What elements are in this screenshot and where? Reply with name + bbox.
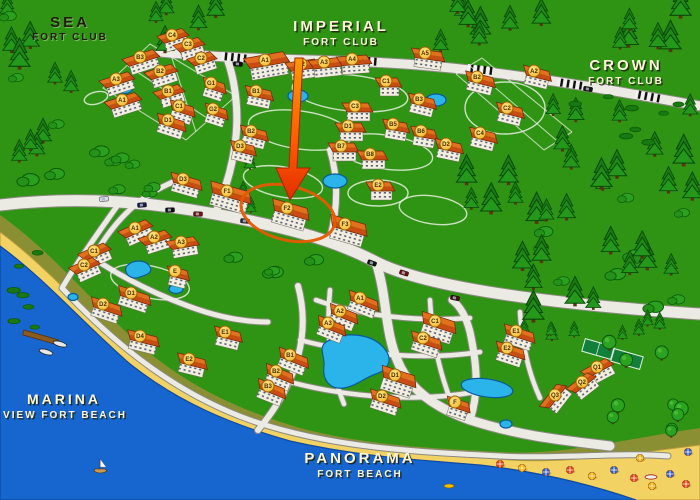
- svg-text:D3: D3: [179, 177, 187, 183]
- svg-text:C2: C2: [80, 263, 88, 269]
- svg-text:B8: B8: [366, 152, 374, 158]
- svg-text:A3: A3: [112, 77, 120, 83]
- building-badge: B2: [154, 65, 166, 77]
- building-badge: C2: [195, 52, 207, 64]
- building-badge: C2: [417, 332, 429, 344]
- svg-text:A2: A2: [530, 69, 538, 75]
- svg-text:B5: B5: [389, 122, 397, 128]
- svg-text:D1: D1: [127, 291, 135, 297]
- building-badge: B3: [134, 51, 146, 63]
- car: [165, 208, 174, 213]
- building-badge: D1: [162, 114, 174, 126]
- building-badge: F: [449, 396, 461, 408]
- svg-text:D1: D1: [344, 124, 352, 130]
- building-badge: G1: [205, 77, 217, 89]
- svg-text:C4: C4: [476, 131, 484, 137]
- svg-text:CROWN: CROWN: [589, 57, 662, 74]
- building-badge: D2: [376, 390, 388, 402]
- svg-text:B2: B2: [473, 75, 481, 81]
- svg-text:B2: B2: [156, 69, 164, 75]
- building-badge: E2: [501, 342, 513, 354]
- svg-text:FORT CLUB: FORT CLUB: [303, 37, 379, 48]
- building-badge: E2: [183, 353, 195, 365]
- svg-text:C1: C1: [175, 104, 183, 110]
- building-badge: A1: [129, 222, 141, 234]
- building-badge: B8: [364, 148, 376, 160]
- building-badge: A1: [354, 292, 366, 304]
- building-badge: D1: [125, 287, 137, 299]
- building-badge: A1: [116, 94, 128, 106]
- building-badge: C2: [501, 102, 513, 114]
- svg-text:A2: A2: [150, 235, 158, 241]
- building-badge: B3: [413, 93, 425, 105]
- building-badge: Q3: [549, 389, 561, 401]
- building-badge: A2: [148, 231, 160, 243]
- svg-text:B7: B7: [337, 144, 345, 150]
- svg-text:D1: D1: [391, 373, 399, 379]
- motorboat: [645, 475, 657, 479]
- svg-text:A1: A1: [356, 296, 364, 302]
- svg-text:E1: E1: [512, 329, 520, 335]
- svg-text:B2: B2: [272, 369, 280, 375]
- svg-text:C2: C2: [197, 56, 205, 62]
- svg-text:A3: A3: [320, 60, 328, 66]
- svg-text:FORT CLUB: FORT CLUB: [588, 76, 664, 87]
- svg-text:F1: F1: [223, 189, 231, 195]
- building-badge: A2: [334, 305, 346, 317]
- svg-text:C2: C2: [419, 336, 427, 342]
- svg-text:C1: C1: [90, 249, 98, 255]
- building-badge: C3: [349, 100, 361, 112]
- building-badge: E: [169, 265, 181, 277]
- svg-text:PANORAMA: PANORAMA: [304, 450, 415, 467]
- svg-text:FORT BEACH: FORT BEACH: [317, 469, 403, 480]
- svg-text:B1: B1: [286, 353, 294, 359]
- building-badge: A5: [419, 47, 431, 59]
- building-badge: E1: [510, 325, 522, 337]
- svg-text:SEA: SEA: [50, 14, 90, 31]
- svg-text:D2: D2: [442, 142, 450, 148]
- building-badge: C4: [474, 127, 486, 139]
- building-badge: F1: [221, 185, 233, 197]
- svg-text:G1: G1: [207, 81, 216, 87]
- building-badge: C3: [182, 38, 194, 50]
- building-badge: D2: [97, 298, 109, 310]
- svg-text:A2: A2: [336, 309, 344, 315]
- svg-text:E2: E2: [185, 357, 193, 363]
- building-badge: D3: [177, 173, 189, 185]
- label-panorama-fort-beach: PANORAMA PANORAMA FORT BEACH FORT BEACH: [304, 450, 417, 482]
- svg-text:F2: F2: [283, 206, 291, 212]
- svg-text:Q2: Q2: [578, 380, 587, 386]
- building-badge: D1: [342, 120, 354, 132]
- svg-text:A1: A1: [261, 58, 269, 64]
- svg-text:B3: B3: [264, 384, 272, 390]
- svg-text:C1: C1: [431, 319, 439, 325]
- svg-text:VIEW FORT BEACH: VIEW FORT BEACH: [3, 410, 127, 421]
- svg-text:C3: C3: [184, 42, 192, 48]
- building-badge: A3: [175, 236, 187, 248]
- building-badge: D4: [134, 330, 146, 342]
- building-badge: B5: [387, 118, 399, 130]
- map-canvas: swimming-poolswimming-poolswimming-pools…: [0, 0, 700, 500]
- svg-text:Q1: Q1: [593, 365, 602, 371]
- svg-text:C3: C3: [351, 104, 359, 110]
- svg-text:B3: B3: [136, 55, 144, 61]
- svg-text:D2: D2: [378, 394, 386, 400]
- building-badge: A3: [322, 317, 334, 329]
- svg-text:F: F: [453, 400, 457, 406]
- building-badge: A3: [318, 56, 330, 68]
- building-badge: E2: [372, 179, 384, 191]
- building-badge: C4: [166, 29, 178, 41]
- building-badge: C1: [380, 75, 392, 87]
- building-badge: B1: [250, 85, 262, 97]
- building-badge: A2: [528, 65, 540, 77]
- car: [233, 61, 242, 66]
- building-badge: C1: [429, 315, 441, 327]
- svg-text:IMPERIAL: IMPERIAL: [293, 18, 389, 35]
- building-badge: F2: [281, 202, 293, 214]
- building-badge: A3: [110, 73, 122, 85]
- svg-text:G2: G2: [209, 107, 218, 113]
- svg-text:B1: B1: [252, 89, 260, 95]
- svg-text:A4: A4: [348, 57, 356, 63]
- building-badge: F3: [339, 218, 351, 230]
- svg-text:D3: D3: [236, 144, 244, 150]
- car: [137, 202, 146, 207]
- svg-text:C1: C1: [382, 79, 390, 85]
- label-imperial-fort-club: IMPERIAL IMPERIAL FORT CLUB FORT CLUB: [293, 18, 390, 50]
- svg-text:D1: D1: [164, 118, 172, 124]
- svg-text:D2: D2: [99, 302, 107, 308]
- building-badge: B2: [245, 125, 257, 137]
- building-badge: C2: [78, 259, 90, 271]
- svg-text:A1: A1: [131, 226, 139, 232]
- building-badge: B2: [471, 71, 483, 83]
- building-badge: G2: [207, 103, 219, 115]
- svg-text:D4: D4: [136, 334, 144, 340]
- building-badge: D3: [234, 140, 246, 152]
- car: [193, 212, 202, 217]
- svg-text:C4: C4: [168, 33, 176, 39]
- svg-text:A3: A3: [324, 321, 332, 327]
- building-badge: B7: [335, 140, 347, 152]
- building-badge: B2: [270, 365, 282, 377]
- building-badge: Q2: [576, 376, 588, 388]
- building-badge: A1: [259, 54, 271, 66]
- building-badge: B3: [262, 380, 274, 392]
- svg-text:B3: B3: [415, 97, 423, 103]
- svg-text:F3: F3: [341, 222, 349, 228]
- building-badge: A4: [346, 53, 358, 65]
- building-badge: Q1: [591, 361, 603, 373]
- building-badge: D2: [440, 138, 452, 150]
- svg-text:E2: E2: [374, 183, 382, 189]
- svg-text:C2: C2: [503, 106, 511, 112]
- svg-text:MARINA: MARINA: [27, 391, 101, 407]
- svg-text:E1: E1: [221, 330, 229, 336]
- svg-text:FORT CLUB: FORT CLUB: [32, 32, 108, 43]
- building-badge: B1: [162, 85, 174, 97]
- svg-text:E: E: [173, 269, 177, 275]
- svg-text:B6: B6: [417, 129, 425, 135]
- svg-text:B1: B1: [164, 89, 172, 95]
- svg-text:B2: B2: [247, 129, 255, 135]
- building-badge: D1: [389, 369, 401, 381]
- svg-text:A5: A5: [421, 51, 429, 57]
- building-badge: C1: [173, 100, 185, 112]
- svg-text:Q3: Q3: [551, 393, 560, 399]
- building-badge: E1: [219, 326, 231, 338]
- svg-text:E2: E2: [503, 346, 511, 352]
- resort-map: swimming-poolswimming-poolswimming-pools…: [0, 0, 700, 500]
- svg-text:A3: A3: [177, 240, 185, 246]
- building-badge: B1: [284, 349, 296, 361]
- svg-text:A1: A1: [118, 98, 126, 104]
- car: [99, 196, 108, 201]
- label-crown-fort-club: CROWN CROWN FORT CLUB FORT CLUB: [588, 57, 665, 89]
- pedal-boat: [444, 484, 454, 488]
- building-badge: C1: [88, 245, 100, 257]
- building-badge: B6: [415, 125, 427, 137]
